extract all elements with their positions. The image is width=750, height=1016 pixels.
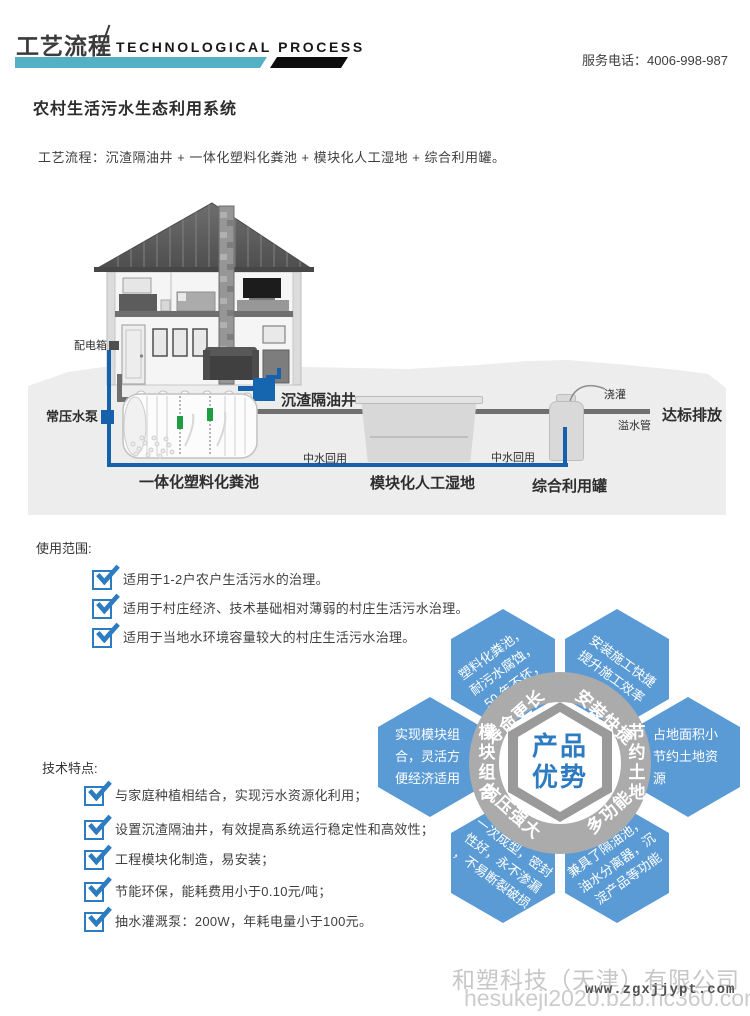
features-heading: 技术特点: [42, 758, 98, 777]
roof [94, 203, 314, 272]
label-septic-tank: 一体化塑料化粪池 [139, 471, 259, 492]
checkbox-checked-icon [84, 912, 104, 932]
advantage-hex-right: 占地面积小节约土地资源 [636, 697, 740, 817]
feature-item: 节能环保，能耗费用小于0.10元/吨； [84, 882, 332, 902]
checkbox-checked-icon [84, 820, 104, 840]
usage-item: 适用于当地水环境容量较大的村庄生活污水治理。 [92, 628, 416, 648]
label-reuse-right: 中水回用 [491, 449, 535, 465]
pipe-power-down [107, 350, 111, 467]
label-wetland: 模块化人工湿地 [370, 472, 475, 493]
label-distribution-box: 配电箱 [74, 337, 107, 353]
advantages-cluster: 塑料化粪池，耐污水腐蚀，50 年不坏， 安装施工快捷提升施工效率 实现模块组合，… [376, 598, 748, 950]
advantage-hex-left: 实现模块组合，灵活方便经济适用 [378, 697, 482, 817]
pipe-reuse-riser [563, 427, 567, 467]
feature-item: 抽水灌溉泵：200W，年耗电量小于100元。 [84, 912, 372, 932]
center-hexagon-line1: 产品 [518, 731, 602, 762]
label-irrigation: 浇灌 [604, 386, 626, 402]
label-pump: 常压水泵 [46, 406, 98, 425]
service-phone: 服务电话：4006-998-987 [582, 50, 728, 69]
brand-title-en: TECHNOLOGICAL PROCESS [116, 39, 365, 55]
pipe-grease-outlet [238, 386, 254, 391]
usage-item: 适用于1-2户农户生活污水的治理。 [92, 570, 329, 590]
house-illustration [93, 198, 315, 390]
checkbox-checked-icon [92, 599, 112, 619]
page: 工艺流程 TECHNOLOGICAL PROCESS 服务电话：4006-998… [0, 0, 750, 1016]
checkbox-checked-icon [84, 850, 104, 870]
feature-item: 与家庭种植相结合，实现污水资源化利用； [84, 786, 368, 806]
process-flow-line: 工艺流程：沉渣隔油井 + 一体化塑料化粪池 + 模块化人工湿地 + 综合利用罐。 [38, 147, 505, 166]
label-discharge: 达标排放 [662, 404, 722, 425]
usage-heading: 使用范围: [36, 538, 92, 557]
label-overflow-pipe: 溢水管 [618, 417, 651, 433]
wetland-rim [355, 396, 483, 404]
checkbox-checked-icon [84, 786, 104, 806]
page-title: 农村生活污水生态利用系统 [33, 95, 237, 119]
teal-accent-bar [15, 57, 267, 68]
feature-item: 设置沉渣隔油井，有效提高系统运行稳定性和高效性； [84, 820, 434, 840]
checkbox-checked-icon [84, 882, 104, 902]
checkbox-checked-icon [92, 628, 112, 648]
feature-item: 工程模块化制造，易安装； [84, 850, 275, 870]
septic-tank-illustration [115, 386, 265, 466]
distribution-box [109, 341, 119, 350]
label-grease-well: 沉渣隔油井 [281, 389, 356, 410]
wetland-body [358, 404, 480, 462]
site-url-watermark: www.zgxjjypt.com [585, 982, 735, 998]
center-hexagon-line2: 优势 [518, 762, 602, 793]
label-reuse-left: 中水回用 [303, 450, 347, 466]
label-utility-tank: 综合利用罐 [532, 475, 607, 496]
pump-marker [101, 410, 114, 424]
pipe-grease-inlet-horizontal [266, 375, 281, 379]
checkbox-checked-icon [92, 570, 112, 590]
brand-title-cn: 工艺流程 [16, 27, 112, 61]
black-accent-bar [270, 57, 348, 68]
